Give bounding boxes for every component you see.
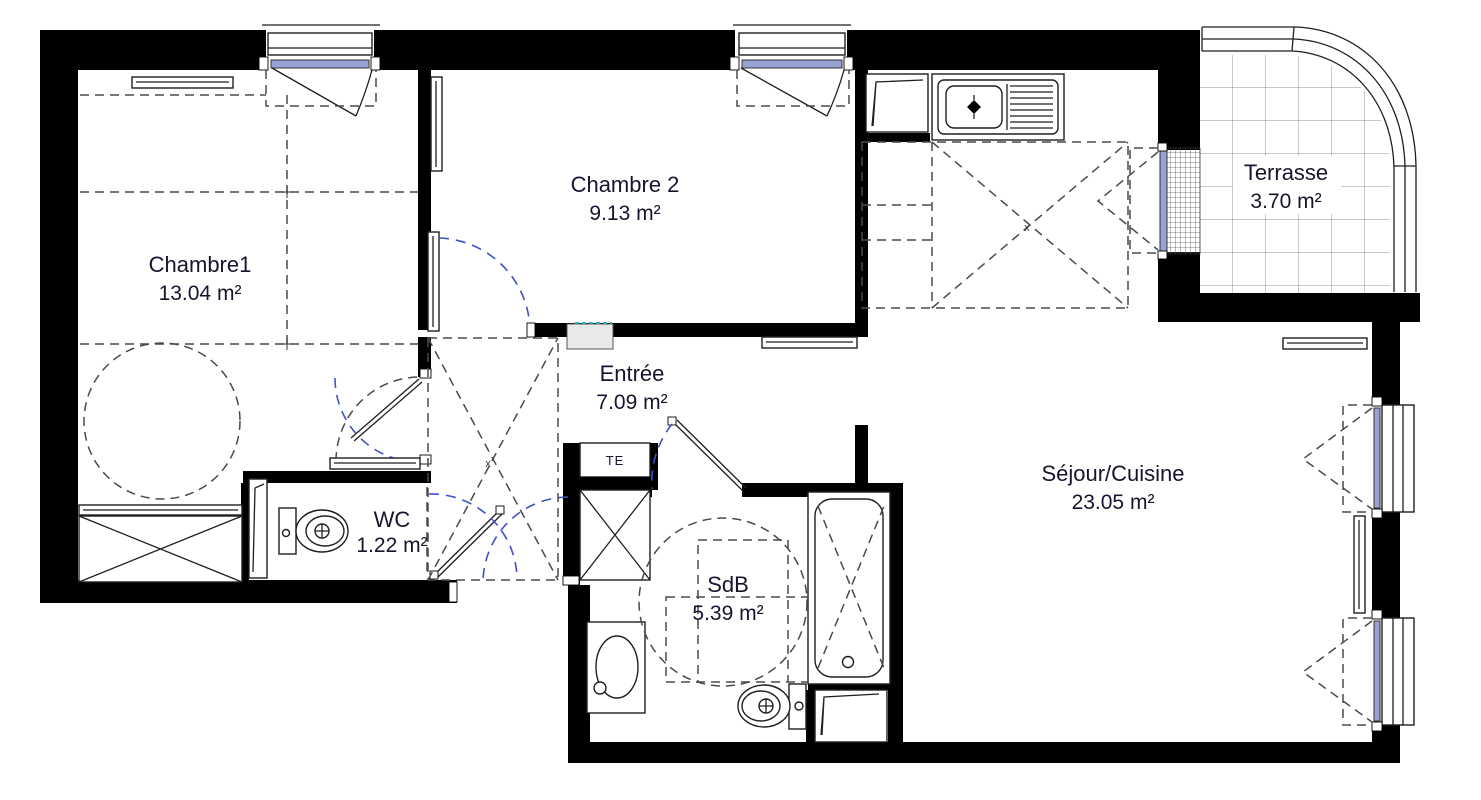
window-zone [266, 70, 376, 106]
kitchen-counter-outline: x [862, 142, 1128, 308]
toilet-icon [738, 684, 806, 729]
door-icon [427, 487, 568, 581]
counter-mark: x [1024, 222, 1030, 234]
fridge-icon [866, 74, 928, 132]
window-icon [1374, 405, 1414, 512]
wardrobe-icon [79, 505, 242, 582]
furniture-circle [84, 343, 240, 499]
room-area-terrasse: 3.70 m² [1250, 190, 1321, 213]
radiator-icon [132, 77, 233, 88]
room-label-terrasse: Terrasse [1244, 160, 1328, 185]
terrace-window-icon [1160, 148, 1200, 254]
room-label-chambre1: Chambre1 [149, 252, 252, 277]
room-label-sdb: SdB [707, 572, 749, 597]
technical-box-label: TE [606, 453, 625, 468]
radiator-icon [762, 337, 857, 348]
door-icon [652, 417, 746, 491]
window-icon [262, 25, 380, 116]
room-area-chambre2: 9.13 m² [589, 202, 660, 225]
radiator-icon [1283, 338, 1367, 349]
washing-machine-icon [815, 690, 887, 742]
room-label-chambre2: Chambre 2 [571, 172, 680, 197]
room-labels: Chambre1 13.04 m² Chambre 2 9.13 m² Entr… [149, 160, 1329, 625]
room-area-wc: 1.22 m² [356, 534, 427, 557]
bed-outline [80, 95, 418, 344]
washbasin-icon [587, 622, 645, 713]
window-tilt [1303, 618, 1372, 725]
room-label-entree: Entrée [600, 361, 665, 386]
closet-mark: x [485, 458, 491, 470]
window-icon [1374, 618, 1414, 725]
door-icon [428, 232, 530, 331]
room-area-sejour: 23.05 m² [1072, 491, 1155, 514]
kitchen-sink-icon [932, 74, 1064, 140]
technical-box: TE [580, 443, 650, 580]
window-icon [733, 25, 851, 116]
window-tilt [1303, 405, 1372, 512]
bathtub-icon [808, 492, 890, 684]
floor-plan: TE [0, 0, 1481, 800]
door-sill [567, 323, 613, 349]
radiator-icon [330, 458, 420, 469]
radiator-icon [431, 77, 442, 171]
toilet-icon [279, 508, 348, 554]
door-icon [335, 377, 422, 462]
duct-panel-icon [249, 479, 267, 578]
radiator-icon [1354, 516, 1365, 613]
floor-plan-page: TE [0, 0, 1481, 800]
room-area-entree: 7.09 m² [596, 391, 667, 414]
room-area-chambre1: 13.04 m² [159, 282, 242, 305]
room-area-sdb: 5.39 m² [692, 602, 763, 625]
room-label-sejour: Séjour/Cuisine [1041, 461, 1184, 486]
room-label-wc: WC [374, 507, 411, 532]
